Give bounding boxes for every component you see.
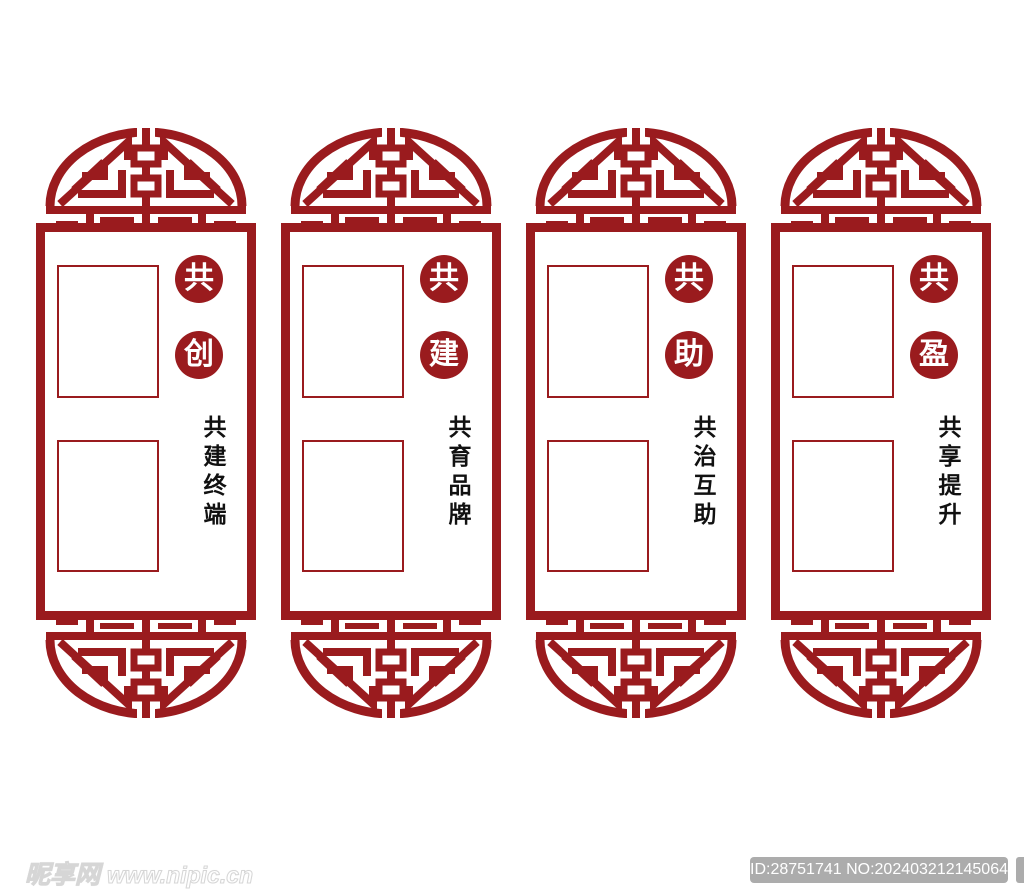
photo-placeholder-top bbox=[57, 265, 159, 398]
tagline-vertical: 共育品牌 bbox=[445, 415, 475, 555]
seal-badge-2: 创 bbox=[175, 331, 223, 379]
tagline-vertical: 共治互助 bbox=[690, 415, 720, 555]
photo-placeholder-bottom bbox=[57, 440, 159, 572]
seal-char: 共 bbox=[674, 262, 704, 295]
lattice-arch-bottom-icon bbox=[771, 618, 991, 718]
seal-badge-1: 共 bbox=[665, 255, 713, 303]
lattice-arch-bottom-icon bbox=[36, 618, 256, 718]
display-panel-1: 共 创 共建终端 bbox=[36, 128, 256, 720]
photo-placeholder-bottom bbox=[547, 440, 649, 572]
lattice-arch-top-icon bbox=[526, 128, 746, 228]
photo-placeholder-bottom bbox=[302, 440, 404, 572]
seal-badge-1: 共 bbox=[175, 255, 223, 303]
seal-char: 建 bbox=[429, 338, 459, 371]
panels-row: 共 创 共建终端 共 建 共育品牌 共 助 共治互助 共 盈 共享 bbox=[36, 128, 991, 720]
lattice-arch-top-icon bbox=[771, 128, 991, 228]
photo-placeholder-bottom bbox=[792, 440, 894, 572]
seal-char: 盈 bbox=[919, 338, 949, 371]
seal-badge-2: 盈 bbox=[910, 331, 958, 379]
lattice-arch-top-icon bbox=[281, 128, 501, 228]
seal-badge-1: 共 bbox=[910, 255, 958, 303]
lattice-arch-bottom-icon bbox=[281, 618, 501, 718]
tagline-vertical: 共享提升 bbox=[935, 415, 965, 555]
photo-placeholder-top bbox=[792, 265, 894, 398]
lattice-arch-top-icon bbox=[36, 128, 256, 228]
seal-badge-2: 助 bbox=[665, 331, 713, 379]
photo-placeholder-top bbox=[547, 265, 649, 398]
watermark-site-url: www.nipic.cn bbox=[107, 862, 253, 888]
watermark-id-badge: ID:28751741 NO:20240321214506417101 bbox=[750, 857, 1008, 883]
display-panel-3: 共 助 共治互助 bbox=[526, 128, 746, 720]
seal-badge-1: 共 bbox=[420, 255, 468, 303]
watermark-site-name: 昵享网 bbox=[25, 861, 100, 889]
seal-char: 创 bbox=[184, 338, 214, 371]
photo-placeholder-top bbox=[302, 265, 404, 398]
lattice-arch-bottom-icon bbox=[526, 618, 746, 718]
seal-char: 助 bbox=[674, 338, 704, 371]
seal-char: 共 bbox=[429, 262, 459, 295]
tagline-vertical: 共建终端 bbox=[200, 415, 230, 555]
display-panel-4: 共 盈 共享提升 bbox=[771, 128, 991, 720]
seal-char: 共 bbox=[184, 262, 214, 295]
seal-badge-2: 建 bbox=[420, 331, 468, 379]
seal-char: 共 bbox=[919, 262, 949, 295]
watermark-edge-fragment bbox=[1016, 857, 1024, 883]
display-panel-2: 共 建 共育品牌 bbox=[281, 128, 501, 720]
watermark-site: 昵享网 www.nipic.cn bbox=[25, 855, 253, 891]
